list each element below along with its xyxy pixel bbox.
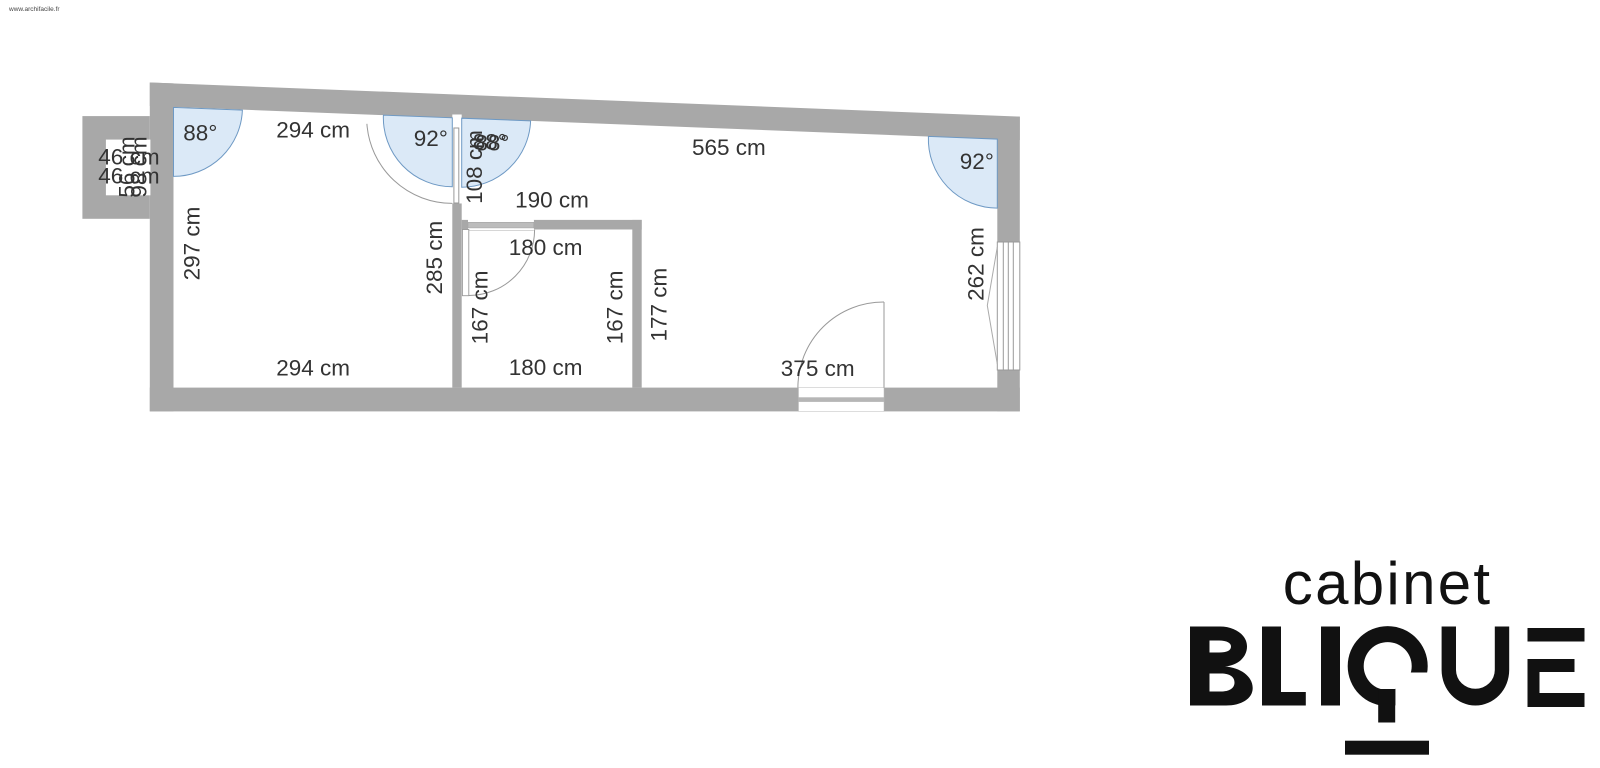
svg-text:294 cm: 294 cm: [276, 117, 350, 142]
svg-text:92°: 92°: [414, 126, 448, 151]
svg-text:177 cm: 177 cm: [647, 268, 672, 342]
svg-text:565 cm: 565 cm: [692, 135, 766, 160]
svg-text:88°: 88°: [183, 121, 217, 146]
svg-text:167 cm: 167 cm: [602, 271, 627, 345]
svg-text:375 cm: 375 cm: [781, 356, 855, 381]
svg-text:262 cm: 262 cm: [964, 227, 989, 301]
svg-text:92°: 92°: [960, 149, 994, 174]
svg-text:180 cm: 180 cm: [509, 235, 583, 260]
svg-text:294 cm: 294 cm: [276, 355, 350, 380]
svg-text:297 cm: 297 cm: [179, 207, 204, 281]
svg-text:98 cm: 98 cm: [127, 136, 152, 197]
svg-text:cabinet: cabinet: [1283, 550, 1493, 617]
svg-text:285 cm: 285 cm: [422, 221, 447, 295]
svg-text:180 cm: 180 cm: [509, 355, 583, 380]
svg-text:108 cm: 108 cm: [462, 130, 487, 204]
svg-text:www.archifacile.fr: www.archifacile.fr: [8, 6, 60, 13]
svg-text:167 cm: 167 cm: [468, 271, 493, 345]
svg-text:190 cm: 190 cm: [515, 188, 589, 213]
